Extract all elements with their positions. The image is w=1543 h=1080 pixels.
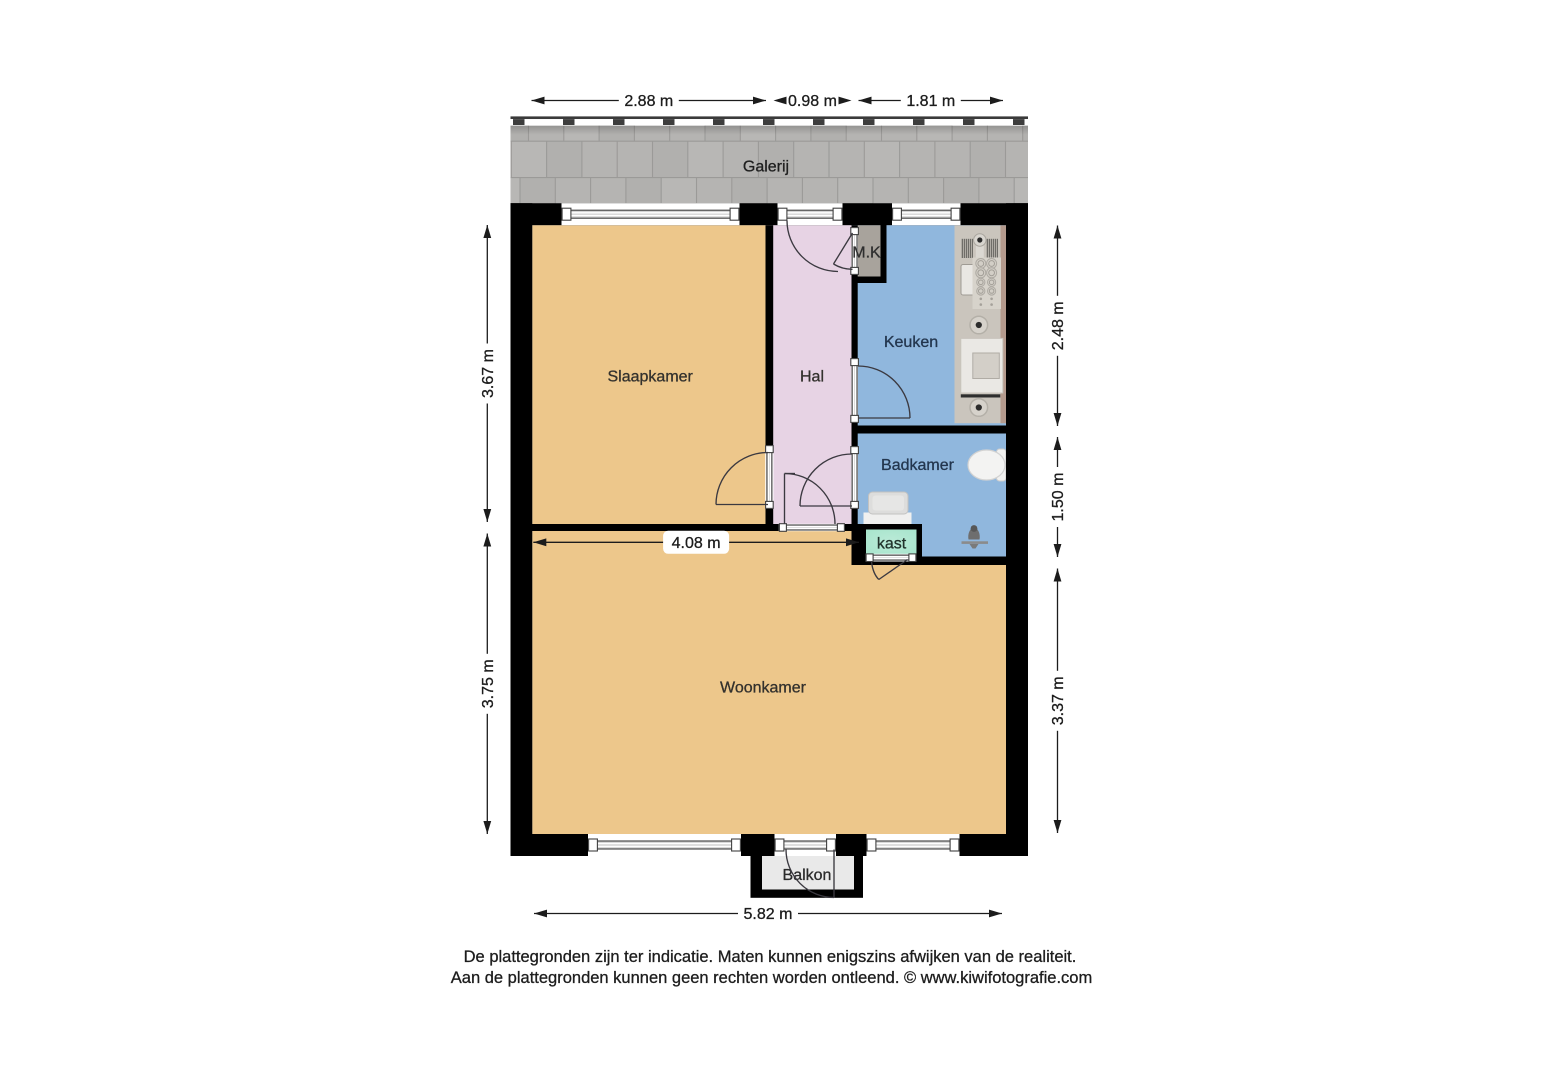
svg-text:Galerij: Galerij (743, 159, 789, 176)
svg-text:De plattegronden zijn ter indi: De plattegronden zijn ter indicatie. Mat… (464, 948, 1077, 966)
svg-text:3.67 m: 3.67 m (480, 349, 497, 398)
svg-text:1.81 m: 1.81 m (906, 93, 955, 110)
svg-text:kast: kast (877, 535, 907, 552)
svg-text:Slaapkamer: Slaapkamer (608, 369, 694, 386)
svg-text:5.82 m: 5.82 m (744, 906, 793, 923)
svg-text:Woonkamer: Woonkamer (720, 680, 807, 697)
svg-text:3.37 m: 3.37 m (1050, 676, 1067, 725)
svg-text:2.88 m: 2.88 m (624, 93, 673, 110)
svg-text:4.08 m: 4.08 m (672, 535, 721, 552)
svg-text:1.50 m: 1.50 m (1050, 473, 1067, 522)
svg-text:0.98 m: 0.98 m (788, 93, 837, 110)
svg-text:Badkamer: Badkamer (881, 457, 955, 474)
svg-text:Hal: Hal (800, 369, 824, 386)
svg-text:2.48 m: 2.48 m (1050, 301, 1067, 350)
svg-text:3.75 m: 3.75 m (480, 659, 497, 708)
svg-text:M.K: M.K (852, 245, 881, 262)
svg-text:Keuken: Keuken (884, 334, 938, 351)
svg-text:Aan de plattegronden kunnen ge: Aan de plattegronden kunnen geen rechten… (451, 969, 1092, 987)
